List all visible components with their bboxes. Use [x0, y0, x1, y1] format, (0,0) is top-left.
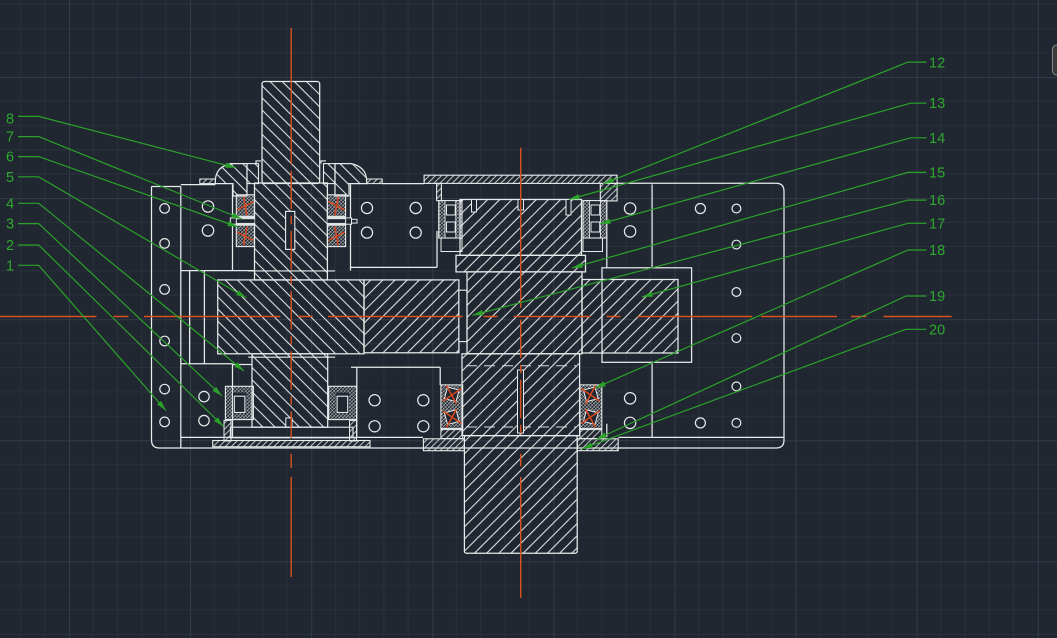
svg-text:13: 13: [929, 96, 945, 112]
svg-text:1: 1: [6, 258, 14, 274]
svg-text:7: 7: [6, 130, 14, 146]
svg-text:2: 2: [6, 238, 14, 254]
svg-text:14: 14: [929, 131, 945, 147]
svg-text:20: 20: [929, 322, 945, 338]
svg-text:3: 3: [6, 217, 14, 233]
svg-text:12: 12: [929, 55, 945, 71]
svg-text:18: 18: [929, 243, 945, 259]
svg-text:19: 19: [929, 289, 945, 305]
svg-text:8: 8: [6, 111, 14, 127]
svg-text:17: 17: [929, 216, 945, 232]
svg-text:4: 4: [6, 196, 14, 212]
svg-text:15: 15: [929, 165, 945, 181]
svg-text:16: 16: [929, 193, 945, 209]
svg-text:5: 5: [6, 170, 14, 186]
svg-text:6: 6: [6, 150, 14, 166]
